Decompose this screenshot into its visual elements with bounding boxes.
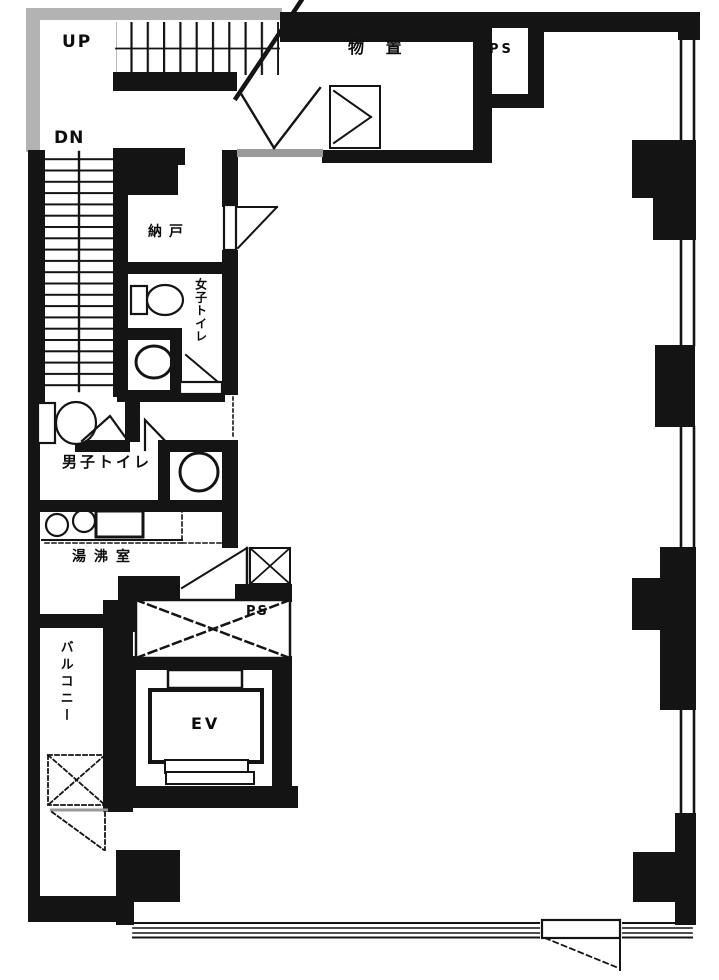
storage-closet-doors (330, 86, 380, 148)
label-balcony: バルコニー (58, 640, 72, 760)
entrance-doors (237, 88, 323, 157)
label-elevator: EV (191, 716, 220, 733)
pipe-shaft-box (136, 548, 290, 658)
pillars (632, 140, 696, 925)
nando-door (224, 205, 277, 250)
label-kitchenette: 湯沸室 (72, 550, 138, 565)
down-staircase (45, 152, 115, 391)
bottom-window-wall (133, 916, 692, 970)
label-closet: 納戸 (148, 225, 190, 240)
label-storage-room: 物 置 (348, 40, 410, 57)
floorplan-drawing (0, 0, 719, 980)
balcony-hatch (48, 755, 105, 805)
pipe-shaft-top-interior (492, 28, 528, 94)
label-stairs-up: UP (62, 34, 92, 52)
balcony-door (50, 810, 108, 850)
label-mens-toilet: 男子トイレ (62, 455, 152, 471)
washbasin (180, 453, 218, 491)
label-pipe-shaft-top: PS (489, 43, 514, 57)
label-stairs-down: DN (54, 130, 84, 148)
label-pipe-shaft-mid: PS (246, 605, 269, 619)
exit-door-leaf (542, 920, 620, 938)
label-womens-toilet: 女子トイレ (194, 278, 207, 368)
floorplan: UP DN 物 置 PS 納戸 女子トイレ 男子トイレ 湯沸室 バルコニー PS… (0, 0, 719, 980)
